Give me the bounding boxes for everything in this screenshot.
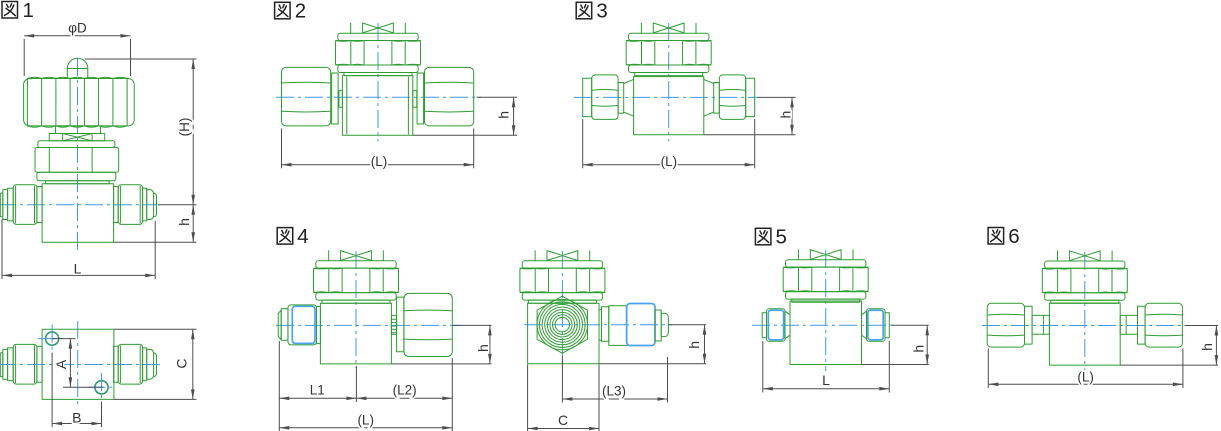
- svg-text:(L): (L): [661, 154, 678, 169]
- svg-text:(L): (L): [357, 412, 374, 427]
- svg-text:(L3): (L3): [602, 383, 626, 398]
- svg-text:L: L: [74, 260, 82, 276]
- svg-text:L1: L1: [310, 383, 325, 398]
- svg-text:6: 6: [1008, 225, 1019, 248]
- svg-text:A: A: [53, 359, 69, 369]
- svg-text:h: h: [1199, 343, 1215, 351]
- svg-text:φD: φD: [68, 21, 87, 36]
- svg-text:h: h: [686, 341, 702, 349]
- svg-text:2: 2: [295, 0, 306, 23]
- svg-text:B: B: [72, 410, 81, 426]
- svg-text:h: h: [910, 345, 926, 353]
- svg-text:3: 3: [596, 0, 607, 23]
- svg-text:h: h: [496, 111, 512, 119]
- svg-text:h: h: [475, 344, 491, 352]
- svg-text:(L2): (L2): [393, 383, 417, 398]
- svg-text:(L): (L): [371, 154, 388, 169]
- svg-text:C: C: [558, 412, 568, 428]
- svg-text:(L): (L): [1077, 370, 1094, 385]
- svg-text:h: h: [778, 111, 794, 119]
- svg-text:(H): (H): [177, 118, 192, 137]
- svg-text:1: 1: [22, 0, 33, 22]
- svg-text:4: 4: [297, 225, 308, 248]
- svg-text:C: C: [174, 358, 190, 368]
- svg-text:L: L: [822, 372, 830, 388]
- svg-text:5: 5: [775, 226, 786, 249]
- svg-text:h: h: [176, 218, 192, 226]
